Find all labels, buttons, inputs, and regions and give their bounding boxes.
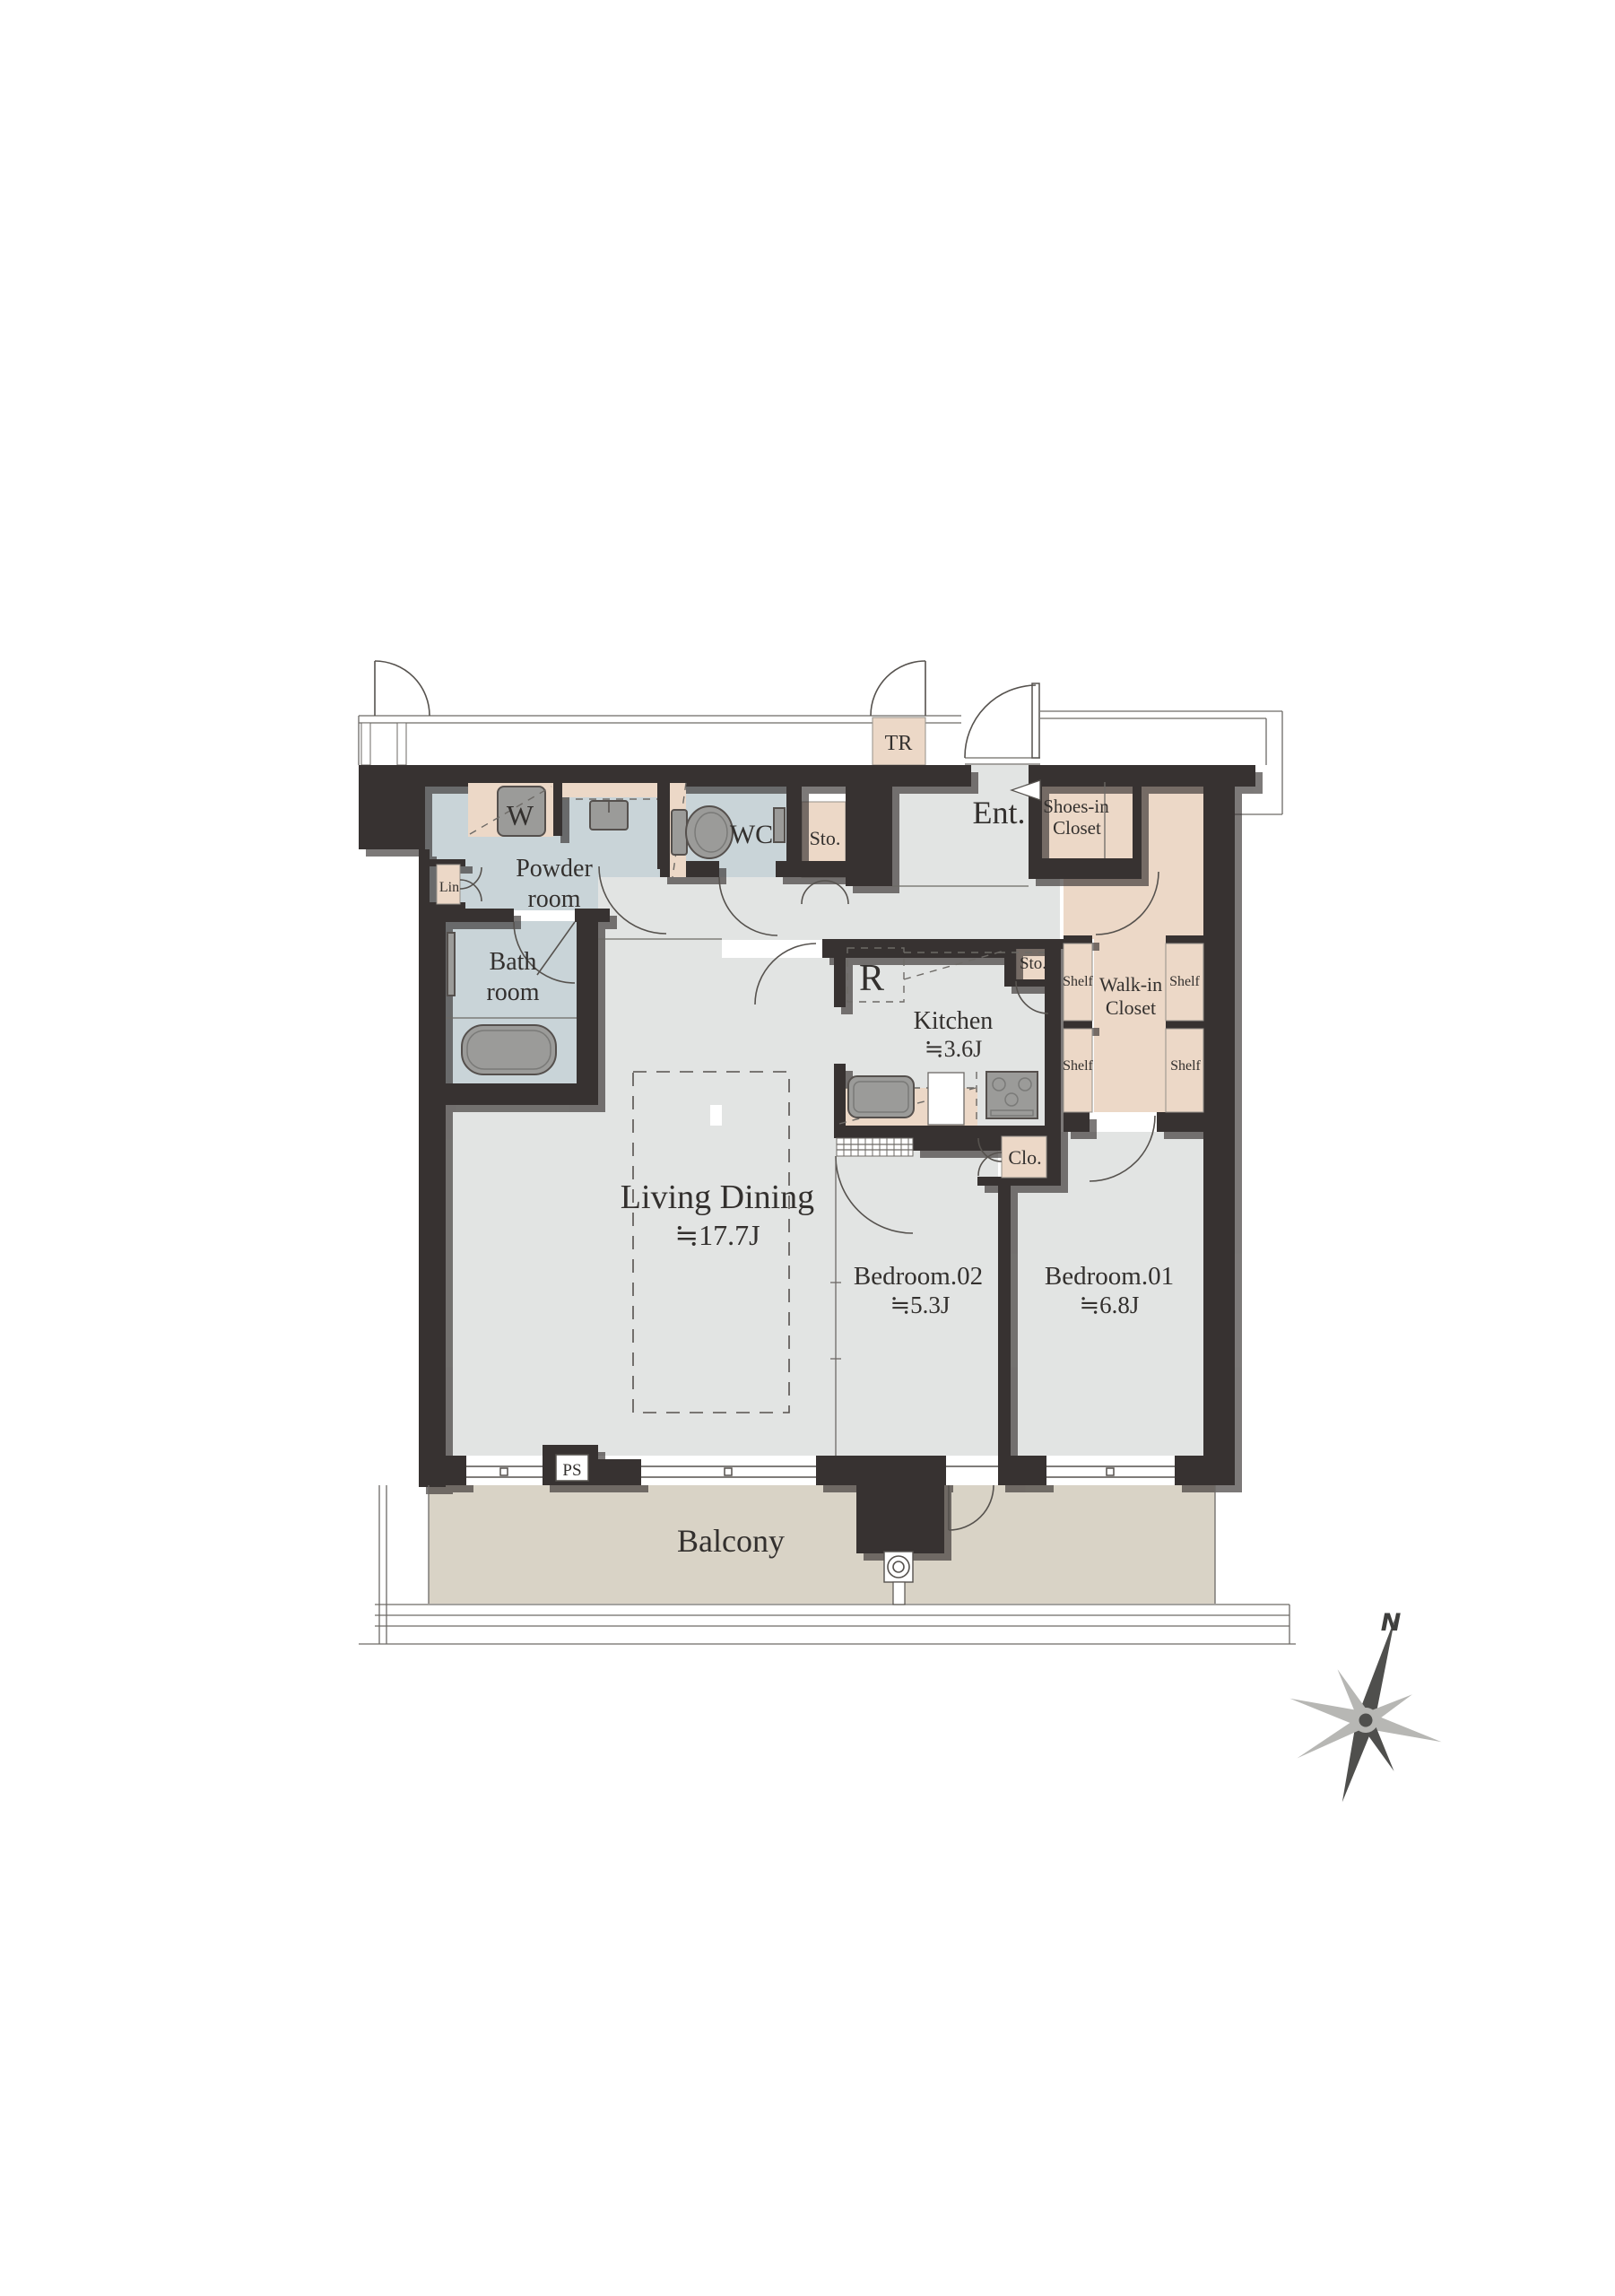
- label-shelf-3: Shelf: [1063, 1058, 1093, 1074]
- label-bedroom-01: Bedroom.01: [1045, 1262, 1174, 1291]
- walk-in-closet-floor: [1142, 782, 1203, 867]
- label-kitchen-area: ≒3.6J: [925, 1036, 982, 1062]
- label-balcony: Balcony: [677, 1523, 785, 1559]
- label-powder-1: Powder: [516, 855, 593, 883]
- label-bedroom-02: Bedroom.02: [854, 1262, 983, 1291]
- label-shoes-in-closet-2: Closet: [1053, 817, 1101, 839]
- label-tr: TR: [885, 732, 913, 755]
- living-floor: [598, 939, 722, 1105]
- window: [641, 1459, 816, 1485]
- label-storage-hall: Sto.: [810, 827, 841, 849]
- label-walk-in-2: Closet: [1106, 996, 1156, 1019]
- window-jamb: [361, 723, 370, 765]
- label-washer: W: [507, 799, 534, 831]
- corridor-door: [871, 661, 925, 716]
- label-entrance: Ent.: [973, 795, 1026, 831]
- vanity-counter: [562, 783, 657, 797]
- balcony-floor: [429, 1485, 1215, 1604]
- label-ps: PS: [562, 1461, 581, 1480]
- living-floor: [710, 1126, 836, 1456]
- label-clo: Clo.: [1008, 1146, 1041, 1169]
- label-storage-kitchen: Sto.: [1020, 954, 1046, 973]
- label-linen: Lin: [439, 880, 459, 895]
- window: [466, 1459, 543, 1485]
- label-refrigerator: R: [859, 958, 884, 999]
- label-shelf-2: Shelf: [1169, 974, 1200, 989]
- window: [1046, 1459, 1175, 1485]
- label-bedroom-02-area: ≒5.3J: [890, 1291, 951, 1318]
- label-living-dining-area: ≒17.7J: [674, 1219, 760, 1251]
- cistern: [774, 808, 785, 842]
- label-bath-2: room: [486, 978, 539, 1006]
- label-bath-1: Bath: [490, 948, 537, 976]
- label-shoes-in-closet-1: Shoes-in: [1043, 796, 1109, 817]
- living-floor: [446, 1105, 710, 1456]
- floor-plan-image: TR Ent. Shoes-in Closet Sto. W WC Lin Po…: [0, 0, 1615, 2296]
- label-kitchen: Kitchen: [914, 1007, 994, 1035]
- entrance-door: [965, 683, 1039, 758]
- walk-in-closet-floor: [1064, 879, 1094, 939]
- label-shelf-1: Shelf: [1063, 974, 1093, 989]
- bath-panel: [447, 933, 455, 996]
- compass-north-label: N: [1381, 1609, 1402, 1637]
- cutting-board: [928, 1073, 964, 1125]
- window-jamb: [397, 723, 406, 765]
- stove: [986, 1072, 1038, 1118]
- label-shelf-4: Shelf: [1170, 1058, 1201, 1074]
- corridor-door: [375, 661, 430, 716]
- label-wc: WC: [730, 820, 773, 849]
- floor-plan-page: TR Ent. Shoes-in Closet Sto. W WC Lin Po…: [0, 0, 1615, 2296]
- label-living-dining: Living Dining: [621, 1178, 814, 1216]
- label-walk-in-1: Walk-in: [1099, 973, 1162, 996]
- label-bedroom-01-area: ≒6.8J: [1080, 1291, 1140, 1318]
- compass-icon: N: [1266, 1596, 1471, 1823]
- label-powder-2: room: [527, 885, 580, 913]
